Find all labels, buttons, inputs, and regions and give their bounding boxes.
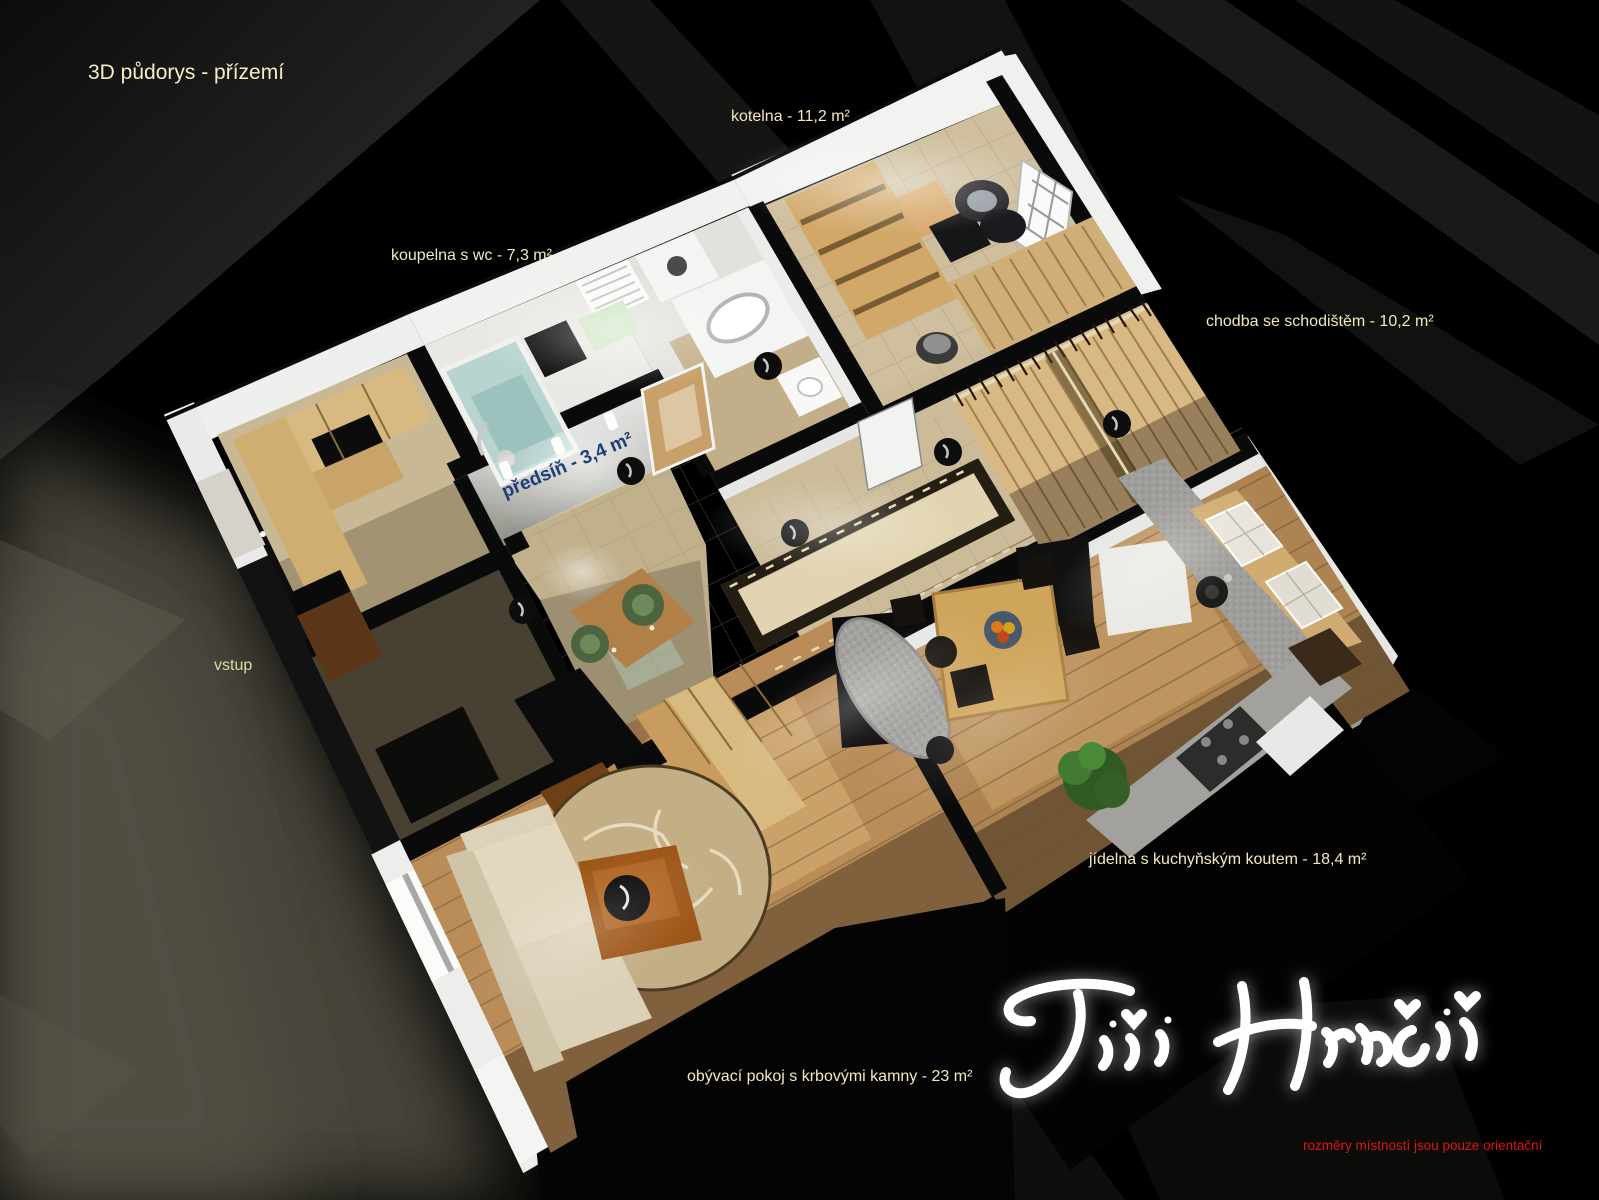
svg-text:koupelna s wc - 7,3 m²: koupelna s wc - 7,3 m² <box>391 247 553 264</box>
svg-text:rozměry místností jsou pouze o: rozměry místností jsou pouze orientační <box>1303 1138 1543 1153</box>
svg-text:chodba se schodištěm - 10,2 m²: chodba se schodištěm - 10,2 m² <box>1206 313 1434 330</box>
svg-text:jídelna s kuchyňským koutem -: jídelna s kuchyňským koutem - 18,4 m² <box>1088 851 1367 868</box>
svg-text:obývací pokoj s krbovými kamny: obývací pokoj s krbovými kamny - 23 m² <box>687 1068 973 1085</box>
svg-text:kotelna - 11,2 m²: kotelna - 11,2 m² <box>731 108 851 125</box>
svg-text:vstup: vstup <box>214 657 252 674</box>
svg-text:3D půdorys - přízemí: 3D půdorys - přízemí <box>88 61 284 84</box>
